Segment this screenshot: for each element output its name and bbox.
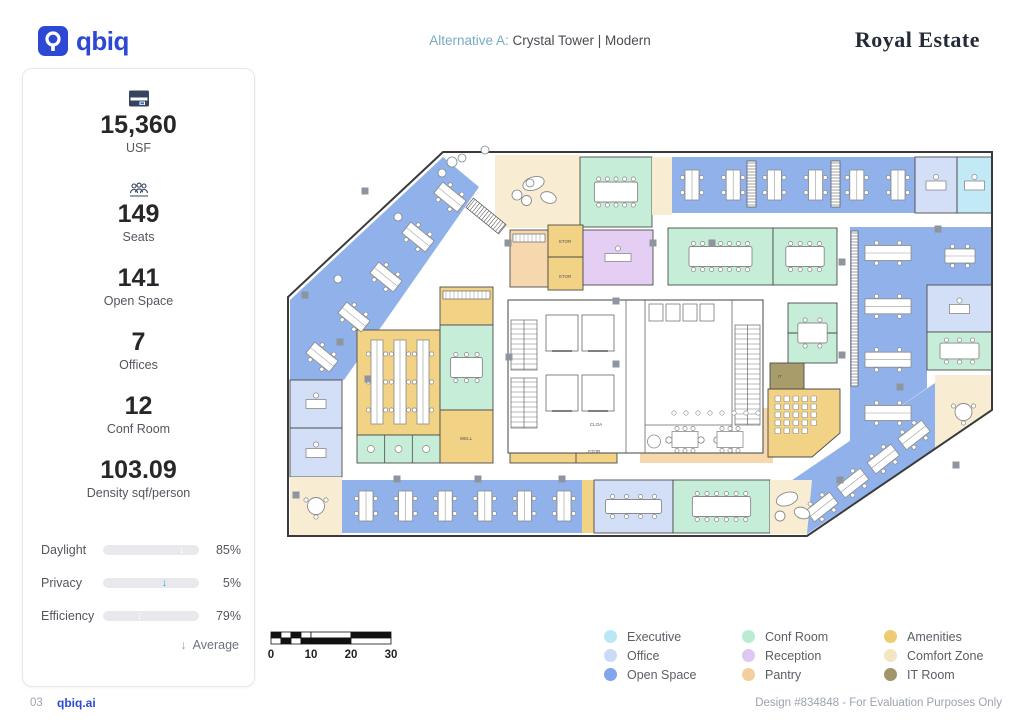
legend-item-it-room: IT Room	[884, 665, 1016, 684]
alternative-label: Alternative A:	[429, 33, 509, 48]
legend-label: Executive	[627, 630, 681, 644]
legend-item-conf-room: Conf Room	[742, 627, 884, 646]
stat-offices: 7Offices	[119, 329, 158, 372]
floorplan-svg: STORSTORCLOASTORWELLIT	[280, 135, 1020, 625]
slider-value: 79%	[208, 609, 241, 623]
average-legend: ↓Average	[41, 638, 241, 652]
stat-value: 7	[132, 329, 146, 356]
room-label-it: IT	[778, 374, 782, 379]
average-label: Average	[193, 638, 239, 652]
stat-label: Seats	[123, 230, 155, 244]
down-arrow-icon: ↓	[180, 638, 186, 652]
page-number: 03	[30, 697, 43, 709]
average-marker-icon: ↓	[179, 542, 185, 558]
page-title: Alternative A: Crystal Tower | Modern	[256, 33, 824, 48]
room-label-stor: STOR	[588, 449, 601, 454]
legend-swatch	[742, 630, 755, 643]
people-icon	[127, 176, 151, 198]
legend-item-executive: Executive	[604, 627, 742, 646]
stat-label: USF	[126, 141, 151, 155]
legend-swatch	[604, 630, 617, 643]
legend-label: Pantry	[765, 668, 801, 682]
stat-label: Conf Room	[107, 422, 170, 436]
slider-track[interactable]: ↓	[103, 545, 199, 555]
zone-legend: ExecutiveOfficeOpen SpaceConf RoomRecept…	[604, 627, 1016, 684]
legend-label: Comfort Zone	[907, 649, 983, 663]
stat-usf: 15,360USF	[100, 87, 176, 155]
stats-card: 15,360USF149Seats141Open Space7Offices12…	[22, 68, 255, 687]
slider-label: Privacy	[41, 576, 103, 590]
svg-text:0: 0	[268, 649, 274, 661]
stat-label: Offices	[119, 358, 158, 372]
legend-label: Open Space	[627, 668, 697, 682]
svg-text:20: 20	[345, 649, 358, 661]
evaluation-note: Design #834848 - For Evaluation Purposes…	[755, 697, 1002, 709]
qbiq-ai-link[interactable]: qbiq.ai	[57, 696, 96, 710]
slider-value: 85%	[208, 543, 241, 557]
qbiq-logo-icon	[38, 26, 68, 56]
slider-label: Daylight	[41, 543, 103, 557]
legend-label: Reception	[765, 649, 821, 663]
stat-seats: 149Seats	[118, 176, 160, 244]
qbiq-logo-text: qbiq	[76, 26, 129, 56]
legend-item-office: Office	[604, 646, 742, 665]
slider-track[interactable]: ↓	[103, 611, 199, 621]
slider-efficiency: Efficiency↓79%	[41, 609, 241, 623]
slider-label: Efficiency	[41, 609, 103, 623]
building-icon	[127, 87, 151, 109]
stat-value: 149	[118, 201, 160, 228]
average-marker-icon: ↓	[137, 608, 143, 624]
legend-swatch	[604, 668, 617, 681]
stat-value: 103.09	[100, 457, 176, 484]
legend-item-comfort-zone: Comfort Zone	[884, 646, 1016, 665]
legend-item-amenities: Amenities	[884, 627, 1016, 646]
legend-item-pantry: Pantry	[742, 665, 884, 684]
legend-swatch	[884, 668, 897, 681]
legend-label: Office	[627, 649, 659, 663]
legend-label: Amenities	[907, 630, 962, 644]
legend-label: Conf Room	[765, 630, 828, 644]
floorplan-drawing: STORSTORCLOASTORWELLIT	[280, 135, 1020, 625]
room-label-stor: STOR	[559, 239, 572, 244]
alternative-value: Crystal Tower | Modern	[513, 33, 651, 48]
room-label-stor: STOR	[559, 274, 572, 279]
average-marker-icon: ↓	[162, 575, 168, 591]
slider-track[interactable]: ↓	[103, 578, 199, 588]
slider-daylight: Daylight↓85%	[41, 543, 241, 557]
stats-list: 15,360USF149Seats141Open Space7Offices12…	[23, 87, 254, 521]
legend-label: IT Room	[907, 668, 955, 682]
slider-value: 5%	[208, 576, 241, 590]
stat-density-sqf-person: 103.09Density sqf/person	[87, 457, 191, 500]
stat-value: 15,360	[100, 112, 176, 139]
svg-text:30: 30	[385, 649, 398, 661]
legend-swatch	[884, 630, 897, 643]
room-label-well: WELL	[460, 436, 473, 441]
legend-swatch	[742, 649, 755, 662]
stat-conf-room: 12Conf Room	[107, 393, 170, 436]
legend-item-reception: Reception	[742, 646, 884, 665]
room-label-cloa: CLOA	[590, 422, 603, 427]
stat-open-space: 141Open Space	[104, 265, 174, 308]
stat-label: Open Space	[104, 294, 174, 308]
client-brand: Royal Estate	[855, 27, 980, 53]
stat-value: 12	[125, 393, 153, 420]
legend-item-open-space: Open Space	[604, 665, 742, 684]
metric-sliders: Daylight↓85%Privacy↓5%Efficiency↓79%↓Ave…	[41, 543, 241, 652]
legend-swatch	[604, 649, 617, 662]
legend-swatch	[742, 668, 755, 681]
legend-swatch	[884, 649, 897, 662]
stat-value: 141	[118, 265, 160, 292]
svg-text:10: 10	[305, 649, 318, 661]
slider-privacy: Privacy↓5%	[41, 576, 241, 590]
qbiq-logo: qbiq	[38, 26, 129, 56]
scale-bar: 0102030	[266, 629, 406, 663]
stat-label: Density sqf/person	[87, 486, 191, 500]
